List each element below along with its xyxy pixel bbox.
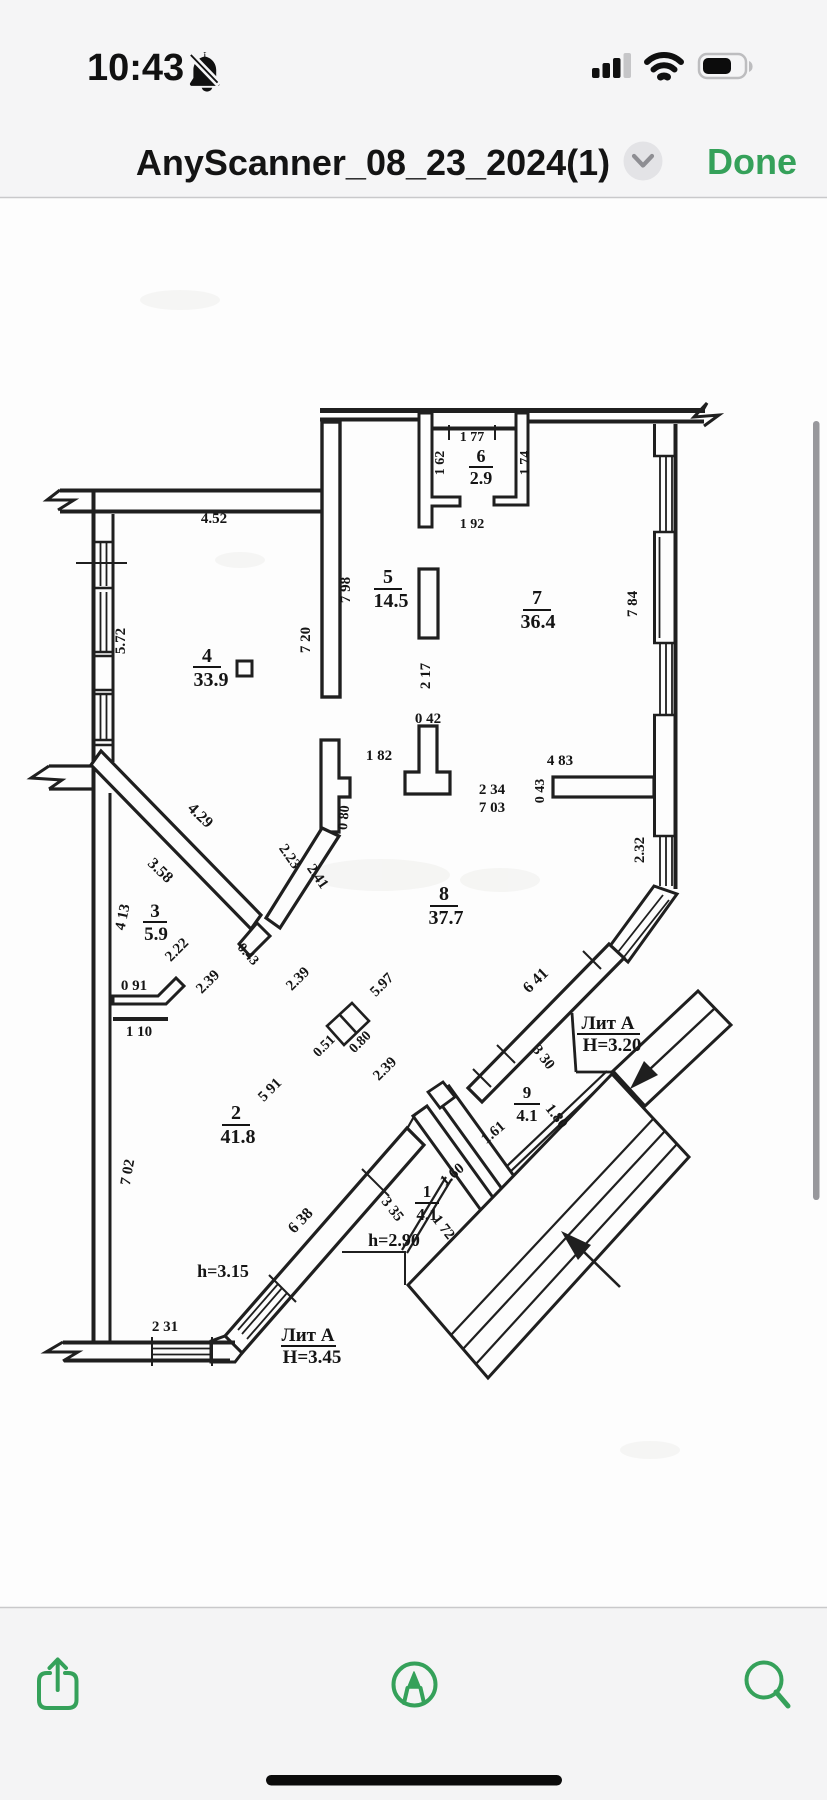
svg-text:7 20: 7 20: [298, 627, 314, 653]
svg-text:1 77: 1 77: [460, 430, 485, 445]
svg-text:4 83: 4 83: [547, 753, 573, 769]
svg-text:33.9: 33.9: [194, 669, 229, 691]
svg-text:7: 7: [532, 587, 542, 609]
svg-text:1 62: 1 62: [433, 451, 448, 476]
svg-text:0 91: 0 91: [121, 978, 147, 994]
svg-text:1 10: 1 10: [126, 1024, 152, 1040]
svg-text:37.7: 37.7: [429, 907, 464, 929]
svg-text:6: 6: [477, 446, 486, 466]
svg-text:5: 5: [383, 566, 393, 588]
svg-text:9: 9: [523, 1083, 532, 1102]
svg-text:3: 3: [150, 901, 160, 922]
svg-text:0 80: 0 80: [336, 805, 353, 831]
svg-text:2.9: 2.9: [470, 468, 493, 488]
svg-text:1 74: 1 74: [518, 451, 533, 476]
svg-text:2 34: 2 34: [479, 782, 506, 798]
svg-text:Лит А: Лит А: [282, 1325, 335, 1346]
svg-text:5.9: 5.9: [144, 924, 168, 945]
svg-text:5.72: 5.72: [113, 628, 129, 654]
svg-text:41.8: 41.8: [221, 1126, 256, 1148]
svg-text:4: 4: [202, 645, 212, 667]
svg-text:4.1: 4.1: [516, 1106, 537, 1125]
svg-text:0 43: 0 43: [533, 779, 548, 804]
svg-text:36.4: 36.4: [521, 611, 556, 633]
svg-text:h=2.90: h=2.90: [368, 1230, 420, 1250]
svg-text:8: 8: [439, 883, 449, 905]
svg-text:Н=3.20: Н=3.20: [583, 1035, 642, 1056]
svg-text:14.5: 14.5: [374, 590, 409, 612]
svg-text:2: 2: [231, 1102, 241, 1124]
svg-text:1 92: 1 92: [460, 517, 485, 532]
svg-text:2 17: 2 17: [418, 662, 434, 689]
svg-text:1: 1: [423, 1182, 432, 1201]
svg-text:h=3.15: h=3.15: [197, 1261, 249, 1281]
svg-text:Н=3.45: Н=3.45: [283, 1347, 342, 1368]
svg-text:7 84: 7 84: [625, 590, 641, 617]
svg-text:Лит А: Лит А: [582, 1013, 635, 1034]
svg-text:2.32: 2.32: [632, 837, 648, 863]
svg-text:2 31: 2 31: [152, 1319, 178, 1335]
svg-text:AnyScanner_08_23_2024(1): AnyScanner_08_23_2024(1): [136, 142, 610, 183]
svg-text:7 98: 7 98: [338, 577, 354, 603]
svg-text:10:43: 10:43: [87, 47, 184, 89]
svg-text:0 42: 0 42: [415, 711, 441, 727]
svg-text:1 82: 1 82: [366, 748, 392, 764]
svg-text:4.52: 4.52: [201, 511, 227, 527]
svg-text:7 03: 7 03: [479, 800, 505, 816]
svg-text:Done: Done: [707, 141, 797, 182]
